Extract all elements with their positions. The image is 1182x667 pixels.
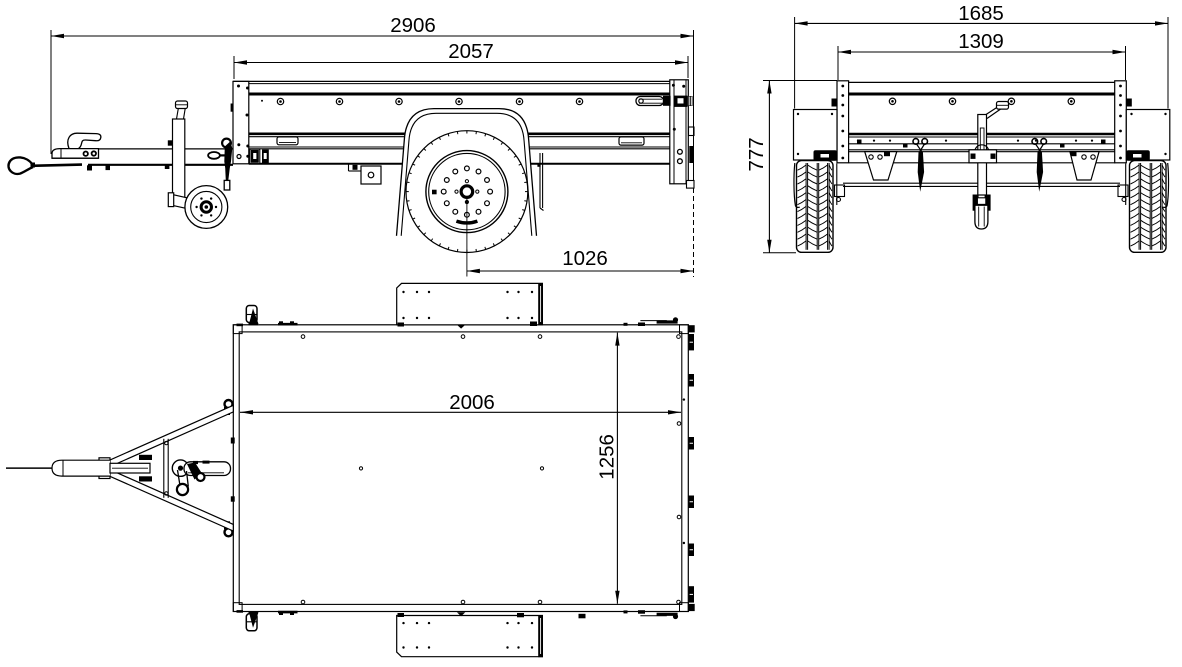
svg-text:1256: 1256 [596,434,619,480]
svg-text:1685: 1685 [958,2,1004,25]
svg-text:2057: 2057 [448,40,494,63]
svg-text:2906: 2906 [390,14,436,37]
svg-text:1309: 1309 [958,30,1004,53]
svg-text:777: 777 [745,137,768,171]
svg-text:1026: 1026 [562,247,608,270]
svg-text:2006: 2006 [449,391,495,414]
